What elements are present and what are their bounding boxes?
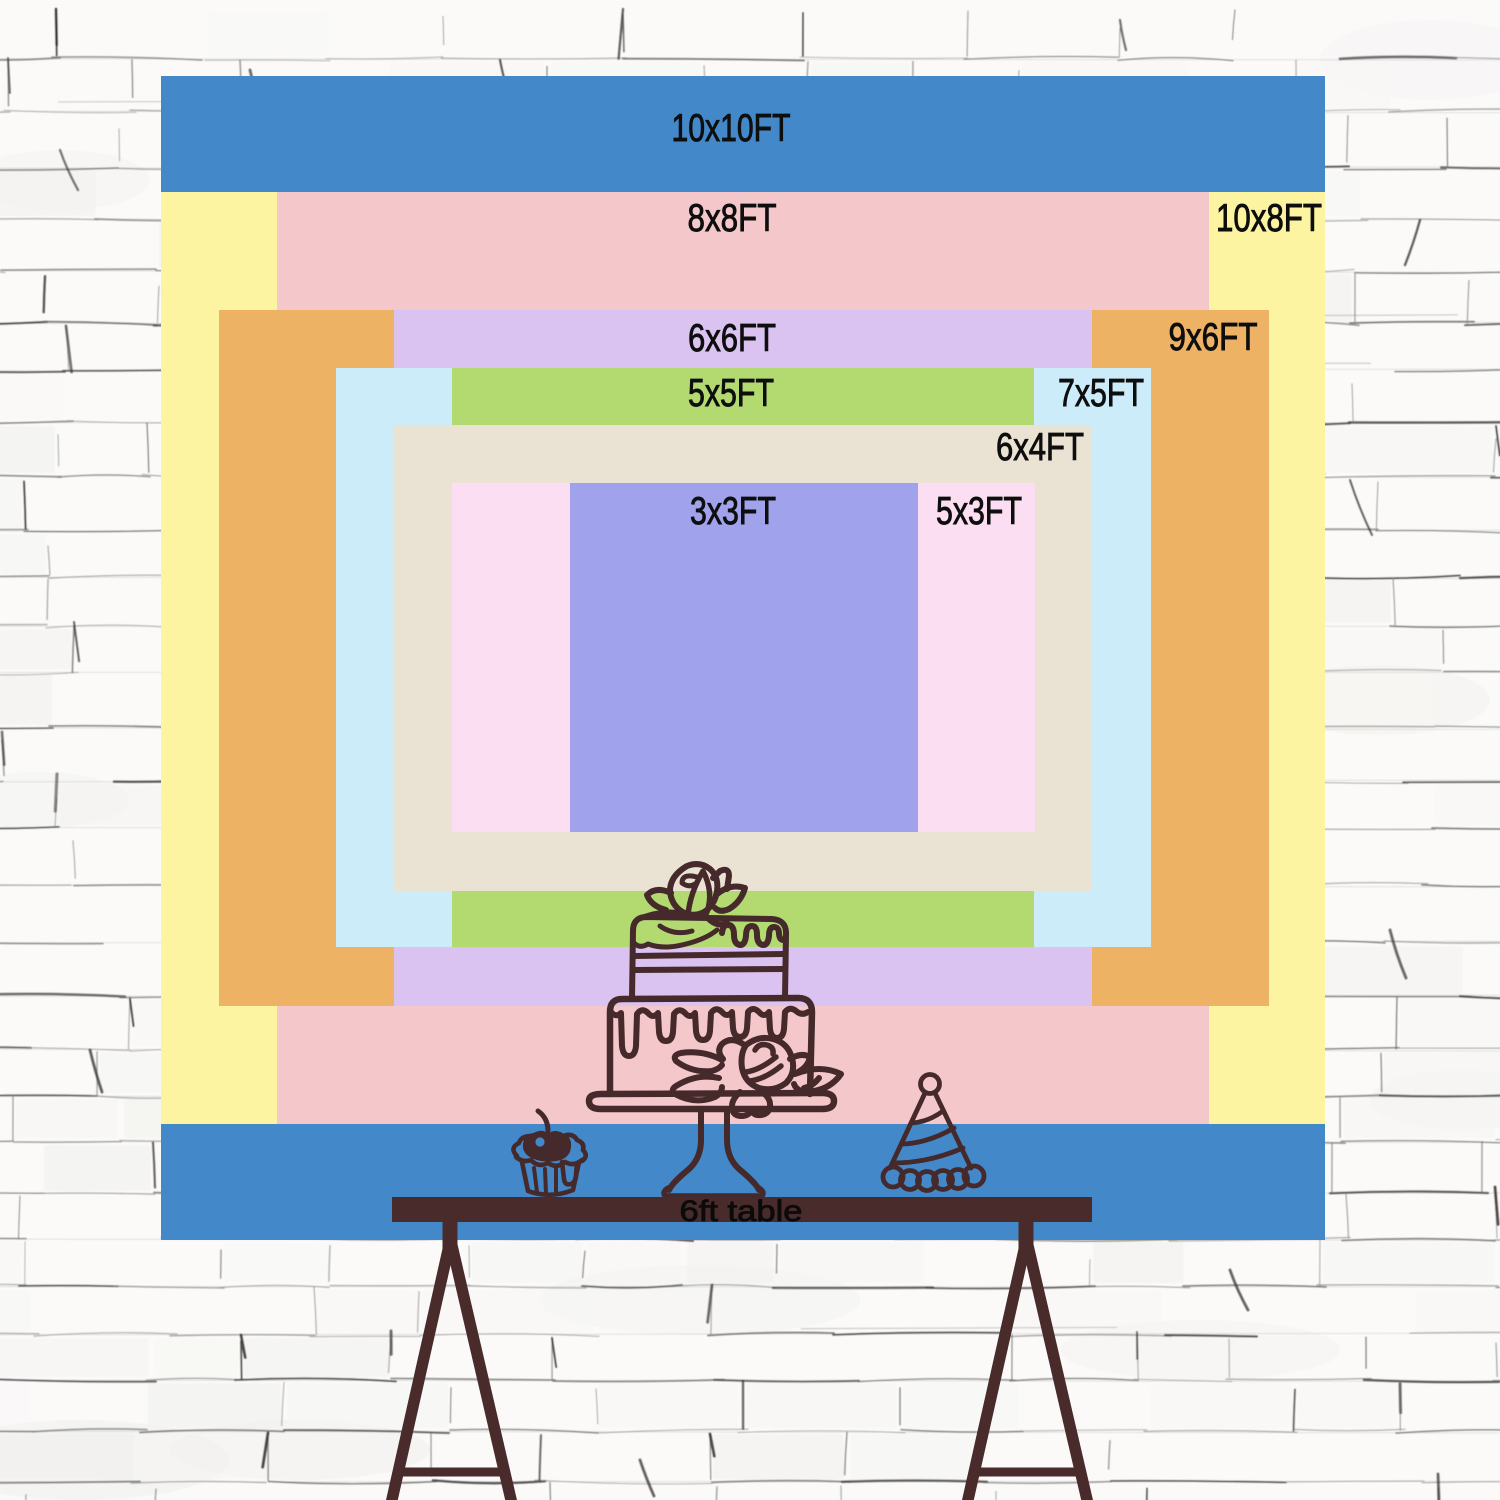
svg-text:6x4FT: 6x4FT (996, 426, 1084, 469)
svg-text:5x5FT: 5x5FT (688, 372, 774, 415)
svg-text:6x6FT: 6x6FT (688, 317, 776, 360)
svg-text:10x8FT: 10x8FT (1216, 197, 1322, 240)
svg-text:8x8FT: 8x8FT (688, 197, 777, 240)
svg-text:7x5FT: 7x5FT (1058, 372, 1144, 415)
svg-text:6ft table: 6ft table (680, 1195, 803, 1228)
svg-text:10x10FT: 10x10FT (672, 107, 791, 150)
svg-text:9x6FT: 9x6FT (1169, 316, 1258, 359)
svg-text:5x3FT: 5x3FT (936, 490, 1022, 533)
svg-text:3x3FT: 3x3FT (690, 490, 776, 533)
